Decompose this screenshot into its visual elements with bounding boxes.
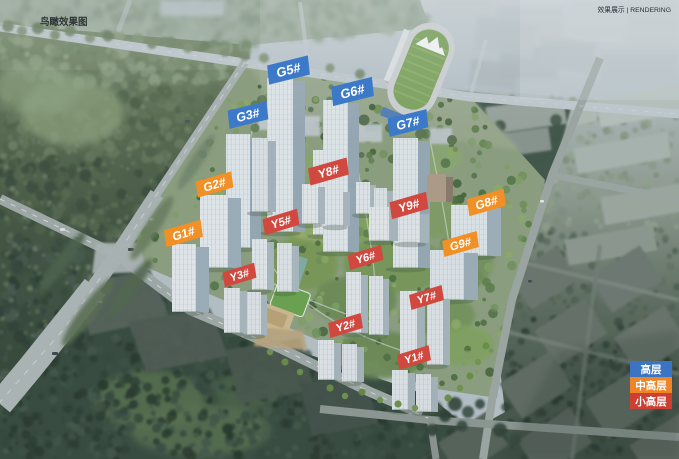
svg-text:效果展示 | RENDERING: 效果展示 | RENDERING xyxy=(597,5,671,14)
svg-text:鸟瞰效果图: 鸟瞰效果图 xyxy=(40,16,88,28)
svg-text:高层: 高层 xyxy=(641,363,662,376)
svg-text:小高层: 小高层 xyxy=(634,395,667,408)
svg-text:中高层: 中高层 xyxy=(635,379,667,392)
